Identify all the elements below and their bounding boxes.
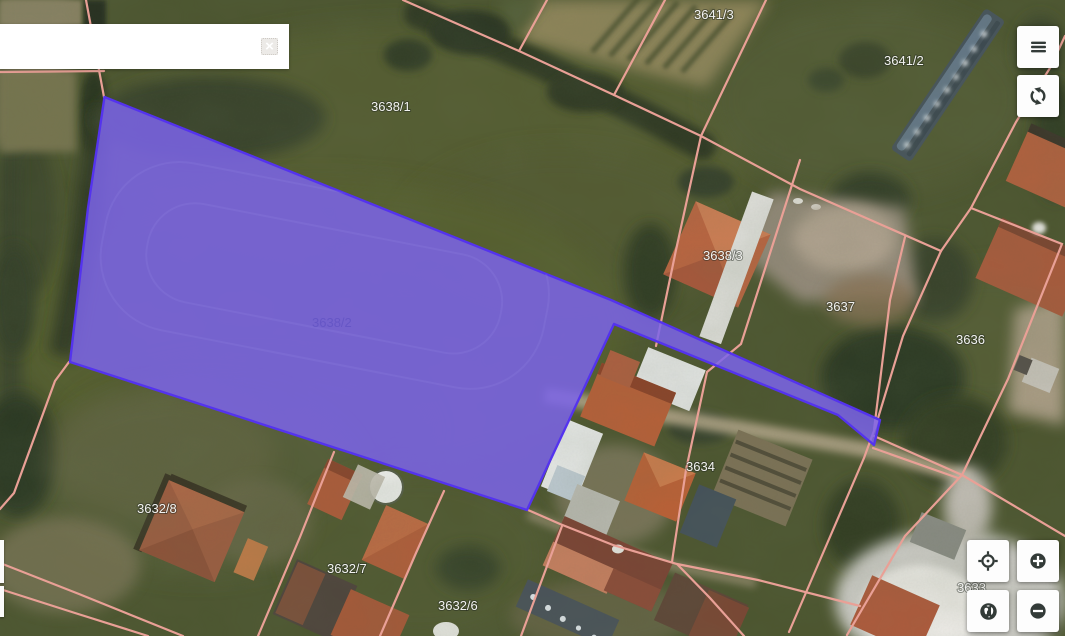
svg-text:3638/2: 3638/2 bbox=[312, 315, 352, 330]
svg-text:3636: 3636 bbox=[956, 332, 985, 347]
svg-text:3634: 3634 bbox=[686, 459, 715, 474]
svg-text:3632/8: 3632/8 bbox=[137, 501, 177, 516]
svg-text:3638/3: 3638/3 bbox=[703, 248, 743, 263]
svg-text:3641/2: 3641/2 bbox=[884, 53, 924, 68]
svg-text:3638/1: 3638/1 bbox=[371, 99, 411, 114]
svg-text:3632/6: 3632/6 bbox=[438, 598, 478, 613]
svg-text:3632/7: 3632/7 bbox=[327, 561, 367, 576]
svg-text:3637: 3637 bbox=[826, 299, 855, 314]
svg-text:3641/3: 3641/3 bbox=[694, 7, 734, 22]
